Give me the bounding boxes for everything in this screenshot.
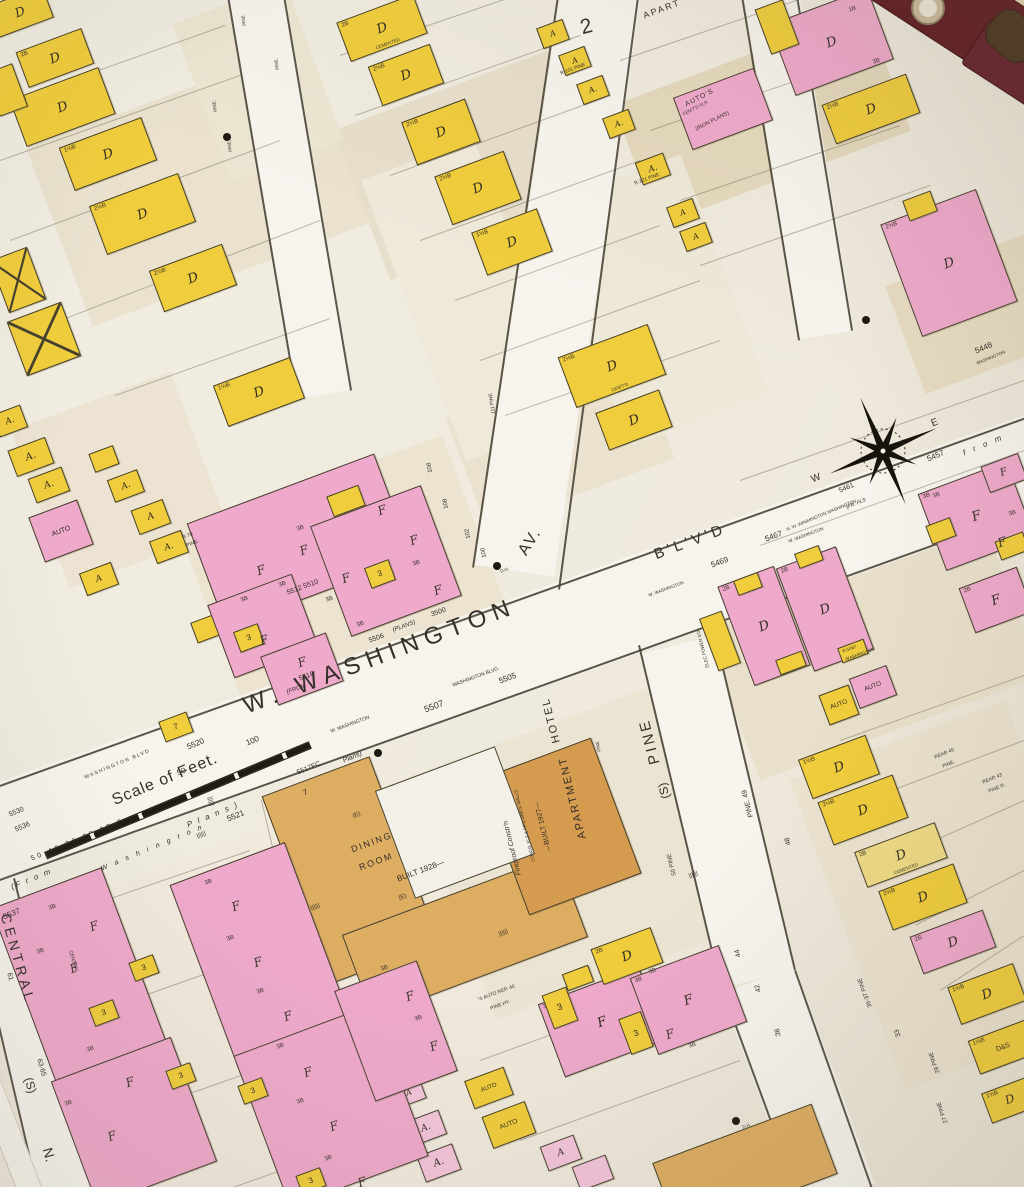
- building-use-letter: AUTO: [499, 1119, 519, 1132]
- building-height-label: 2B: [341, 21, 350, 29]
- building-height-label: 2½B: [562, 354, 576, 364]
- building-use-letter: D: [946, 934, 960, 950]
- survey-marker-dot: [493, 562, 501, 570]
- map-label: APART: [642, 0, 682, 20]
- building-height-label: 1½B: [972, 1037, 986, 1047]
- building-use-letter: A: [146, 511, 156, 522]
- compass-rose-svg: [813, 381, 953, 521]
- building-use-letter: D: [434, 124, 448, 140]
- building: [0, 247, 47, 313]
- building-use-letter: F: [595, 1014, 608, 1029]
- building-use-letter: A: [692, 232, 700, 242]
- building-use-letter: D: [832, 759, 846, 775]
- building-height-label: 1½B: [63, 144, 77, 154]
- building-use-letter: D&S: [995, 1041, 1011, 1053]
- building-use-letter: D: [13, 5, 26, 20]
- building-use-letter: F: [999, 467, 1009, 479]
- sanborn-fire-insurance-map-photo: D2BD2½BD1½BD2½BD2½BDA.A.A.AUTOAA.AA.7D1½…: [0, 0, 1024, 1187]
- building-height-label: 2B: [780, 567, 789, 575]
- building-height-label: 2B: [722, 585, 731, 593]
- building: [7, 302, 82, 377]
- building-height-label: 3B: [634, 976, 643, 984]
- building-use-letter: 3: [246, 633, 253, 642]
- survey-marker-dot: [862, 316, 870, 324]
- building-use-letter: D: [1004, 1093, 1017, 1107]
- building: D1½B: [213, 357, 305, 427]
- compass-rose-icon: [813, 381, 953, 526]
- building-height-label: 1½B: [476, 229, 490, 239]
- building-use-letter: D: [375, 20, 389, 36]
- building-use-letter: A: [556, 1147, 566, 1158]
- building-height-label: 1½B: [802, 756, 816, 766]
- building-use-letter: A.: [432, 1156, 445, 1169]
- building-use-letter: AUTO: [480, 1082, 498, 1093]
- building-use-letter: 3: [141, 963, 148, 972]
- building-height-label: 2B: [859, 850, 868, 858]
- building-use-letter: D: [864, 101, 878, 117]
- building-use-letter: A.: [43, 479, 55, 491]
- building-use-letter: A.: [120, 480, 131, 491]
- building-height-label: 1½B: [952, 984, 966, 994]
- map-label: 48: [784, 837, 793, 846]
- building-use-letter: D: [824, 34, 838, 50]
- map-generated-layers: D2BD2½BD1½BD2½BD2½BDA.A.A.AUTOAA.AA.7D1½…: [0, 0, 1024, 1187]
- building-height-label: 2½B: [153, 267, 167, 277]
- building-use-letter: A.: [163, 541, 174, 552]
- building-use-letter: AUTO: [864, 681, 883, 693]
- building-use-letter: 3: [377, 569, 384, 578]
- building-note-label: CEMENTED: [375, 37, 400, 50]
- building-use-letter: D: [627, 412, 641, 428]
- building-use-letter: D: [399, 67, 413, 83]
- map-label: 3B: [688, 1041, 697, 1049]
- building-use-letter: D: [55, 99, 69, 115]
- survey-marker-dot: [732, 1117, 740, 1125]
- building-use-letter: D: [916, 889, 930, 905]
- building-height-label: 2½B: [372, 63, 386, 73]
- building-use-letter: 3: [250, 1086, 257, 1095]
- building: D: [0, 0, 54, 38]
- building-height-label: 2B: [914, 935, 923, 943]
- building-use-letter: A.: [4, 415, 15, 426]
- map-label: D.H.: [500, 567, 510, 574]
- building-use-letter: D: [505, 234, 519, 250]
- building-height-label: 2B: [963, 586, 972, 594]
- building-use-letter: 3: [178, 1071, 185, 1080]
- building-use-letter: 3: [101, 1008, 108, 1017]
- building-use-letter: A: [95, 574, 104, 584]
- building-use-letter: D: [48, 50, 62, 66]
- building-use-letter: D: [252, 384, 266, 400]
- survey-marker-dot: [374, 749, 382, 757]
- building-use-letter: A: [549, 29, 557, 39]
- cross-brace-icon: [8, 303, 80, 375]
- map-label: ||||||: [196, 831, 207, 840]
- building-height-label: 1½B: [985, 1090, 999, 1100]
- building-use-letter: D: [605, 358, 619, 374]
- survey-marker-dot: [223, 133, 231, 141]
- building-height-label: 2B: [595, 947, 604, 955]
- building-use-letter: F: [681, 992, 694, 1007]
- building-use-letter: D: [471, 180, 485, 196]
- building-height-label: 2½B: [822, 799, 836, 809]
- building-use-letter: AUTO: [51, 524, 72, 537]
- building-use-letter: A.: [588, 85, 599, 95]
- building-use-letter: F: [989, 592, 1002, 607]
- building-use-letter: 3: [632, 1028, 640, 1038]
- building-use-letter: D: [135, 206, 149, 222]
- street-label-central-south: (S): [22, 1076, 38, 1095]
- building-use-letter: 3: [308, 1176, 315, 1185]
- building-use-letter: 7: [173, 722, 180, 731]
- building: AUTO: [482, 1101, 537, 1149]
- street-label-pine-south: (S): [656, 782, 672, 800]
- building-height-label: 2½B: [406, 119, 420, 129]
- building-use-letter: A.: [420, 1122, 432, 1134]
- cross-brace-icon: [0, 248, 45, 312]
- map-label: 27 PINE: [936, 1101, 949, 1124]
- building-height-label: 2½B: [883, 887, 897, 897]
- building-use-letter: D: [186, 270, 200, 286]
- building-use-letter: A.: [614, 119, 625, 129]
- building-height-label: 1½B: [217, 382, 231, 392]
- building-use-letter: D: [620, 948, 634, 964]
- building-use-letter: D: [757, 618, 771, 634]
- building-use-letter: D: [818, 601, 832, 617]
- building-height-label: 2B: [20, 50, 29, 58]
- building-height-label: 2½B: [439, 173, 453, 183]
- building-use-letter: 3: [556, 1003, 564, 1014]
- building-use-letter: A.: [24, 450, 37, 463]
- building-use-letter: D: [101, 146, 115, 162]
- building-height-label: 2½B: [826, 101, 840, 111]
- building: D1½B: [981, 1076, 1024, 1123]
- building-use-letter: D: [856, 802, 870, 818]
- building-use-letter: D: [894, 847, 908, 863]
- lot-line: [520, 1060, 740, 1141]
- building-use-letter: D: [942, 255, 956, 271]
- building-use-letter: F: [969, 508, 982, 523]
- building-use-letter: A: [679, 208, 687, 218]
- building-use-letter: D: [980, 986, 994, 1002]
- building: [652, 1103, 837, 1187]
- building-height-label: 2½B: [93, 202, 107, 212]
- building-use-letter: AUTO: [830, 699, 849, 711]
- building-height-label: 2½B: [885, 221, 899, 231]
